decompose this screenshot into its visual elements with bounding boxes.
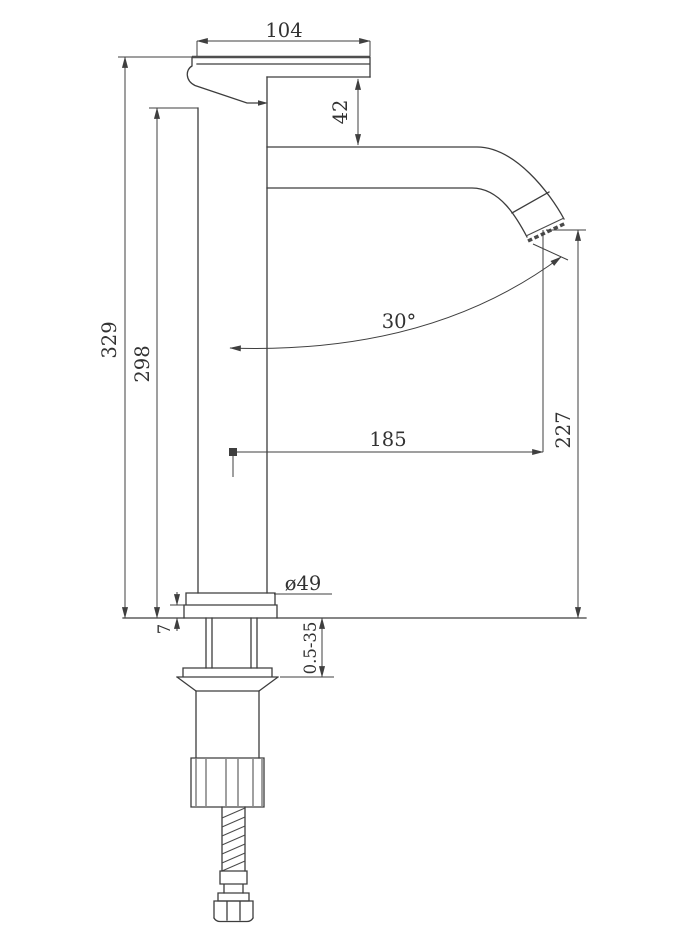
hose-collar [220, 871, 247, 893]
dim-column-height: 298 [131, 108, 198, 618]
hose-washer [218, 893, 249, 901]
hose-outline [214, 807, 253, 922]
dim-104-extensions [197, 41, 370, 56]
dim-185-datum-square [229, 448, 237, 456]
hex-nut [214, 901, 253, 922]
dim-total-height: 329 [98, 57, 192, 618]
dim-spout-reach: 185 [229, 230, 543, 477]
dim-104-label: 104 [265, 19, 302, 42]
shank-outline [177, 618, 278, 807]
body-outline [198, 77, 370, 593]
dim-outlet-height: 227 [546, 230, 586, 618]
base-upper-ring [184, 593, 277, 618]
shank-walls [206, 618, 257, 668]
dim-30-arc [230, 257, 561, 348]
dim-227-label: 227 [552, 411, 575, 448]
dim-185-label: 185 [369, 428, 406, 451]
hose-braiding [222, 808, 245, 871]
dim-35-label: 0.5-35 [301, 622, 320, 675]
cup-walls [196, 691, 259, 758]
dim-298-label: 298 [131, 345, 154, 382]
spout-outline [267, 147, 566, 241]
dim-42-label: 42 [329, 100, 352, 125]
dim-329-label: 329 [98, 321, 121, 358]
aerator-line [512, 192, 549, 213]
dim-mounting-thickness: 0.5-35 [280, 618, 334, 677]
dim-spout-angle: 30° [230, 244, 568, 348]
dim-30-axis-extension [533, 244, 568, 260]
collar [177, 668, 278, 691]
castle-nut-slots [196, 759, 262, 806]
dim-handle-length: 104 [197, 19, 370, 56]
dim-upper-body-height: 42 [329, 79, 358, 145]
dim-base-flange-height: 7 [155, 592, 186, 634]
technical-drawing-canvas: 104 42 329 298 30° 185 227 ø49 [0, 0, 687, 934]
handle-outline [187, 57, 370, 106]
dim-base-diameter: ø49 [274, 572, 332, 595]
dim-49-label: ø49 [285, 572, 322, 595]
dim-7-label: 7 [155, 624, 174, 635]
spout-lower-curve [267, 188, 527, 237]
dim-30-label: 30° [382, 310, 417, 333]
faucet-technical-drawing: 104 42 329 298 30° 185 227 ø49 [0, 0, 687, 934]
base-outline [123, 593, 586, 618]
